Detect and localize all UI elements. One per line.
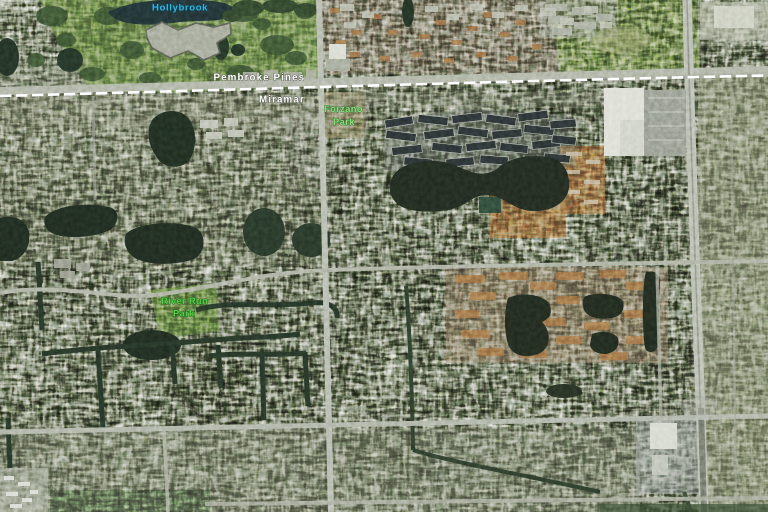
- svg-text:Pembroke Pines: Pembroke Pines: [214, 73, 306, 84]
- svg-text:Forzano: Forzano: [324, 104, 363, 114]
- svg-text:River Run: River Run: [161, 295, 208, 306]
- svg-text:Miramar: Miramar: [259, 95, 305, 106]
- svg-text:Hollybrook: Hollybrook: [152, 3, 208, 14]
- svg-text:Park: Park: [333, 117, 355, 127]
- svg-text:Park: Park: [173, 308, 195, 319]
